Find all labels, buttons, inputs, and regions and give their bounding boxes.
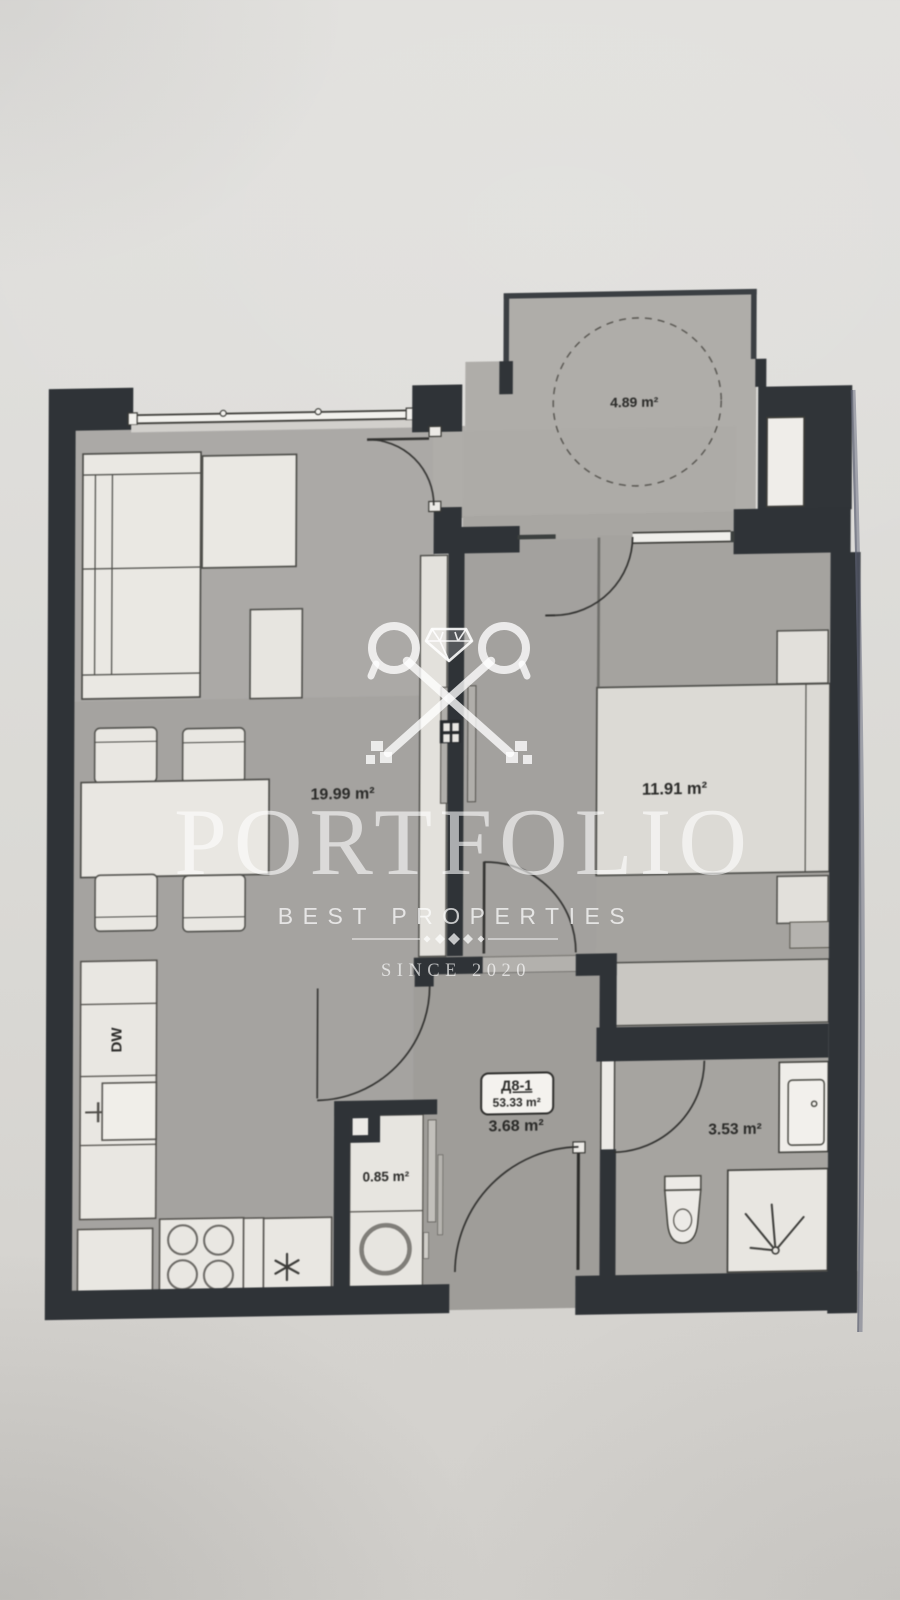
svg-text:BEST PROPERTIES: BEST PROPERTIES: [278, 903, 634, 929]
svg-text:PORTFOLIO: PORTFOLIO: [174, 789, 754, 895]
svg-text:SINCE 2020: SINCE 2020: [381, 961, 531, 981]
